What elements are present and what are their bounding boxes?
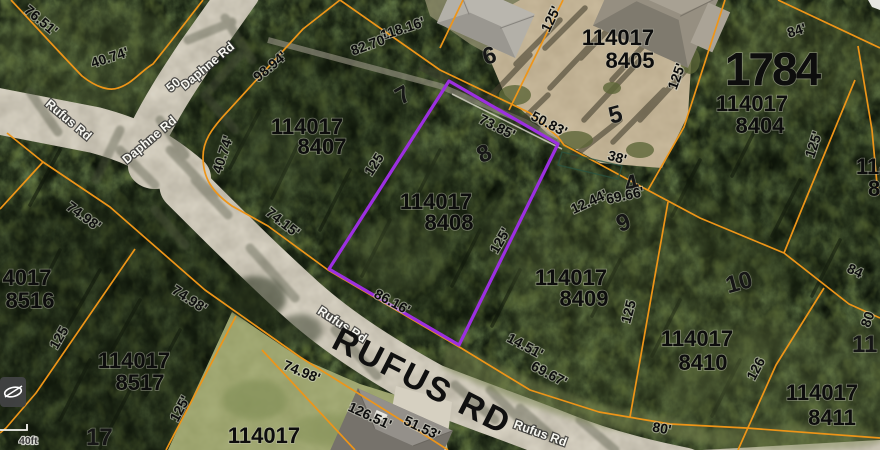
svg-text:8405: 8405: [606, 48, 655, 73]
svg-text:8410: 8410: [679, 350, 728, 375]
svg-text:114017: 114017: [786, 380, 858, 405]
svg-text:4017: 4017: [3, 265, 52, 290]
svg-text:80': 80': [651, 419, 672, 438]
svg-text:114017: 114017: [661, 326, 733, 351]
svg-text:8411: 8411: [808, 405, 856, 430]
svg-text:114017: 114017: [582, 25, 654, 50]
svg-text:8407: 8407: [298, 134, 347, 159]
svg-text:17: 17: [86, 424, 113, 450]
svg-text:84: 84: [868, 176, 880, 201]
svg-text:114017: 114017: [228, 423, 300, 448]
svg-text:8409: 8409: [560, 286, 609, 311]
svg-text:1784: 1784: [725, 43, 822, 95]
svg-text:8408: 8408: [425, 210, 474, 235]
svg-text:11: 11: [852, 331, 877, 358]
svg-text:40ft: 40ft: [19, 435, 38, 447]
svg-text:8517: 8517: [116, 370, 165, 395]
svg-text:8516: 8516: [6, 288, 55, 313]
svg-text:8404: 8404: [736, 113, 786, 138]
